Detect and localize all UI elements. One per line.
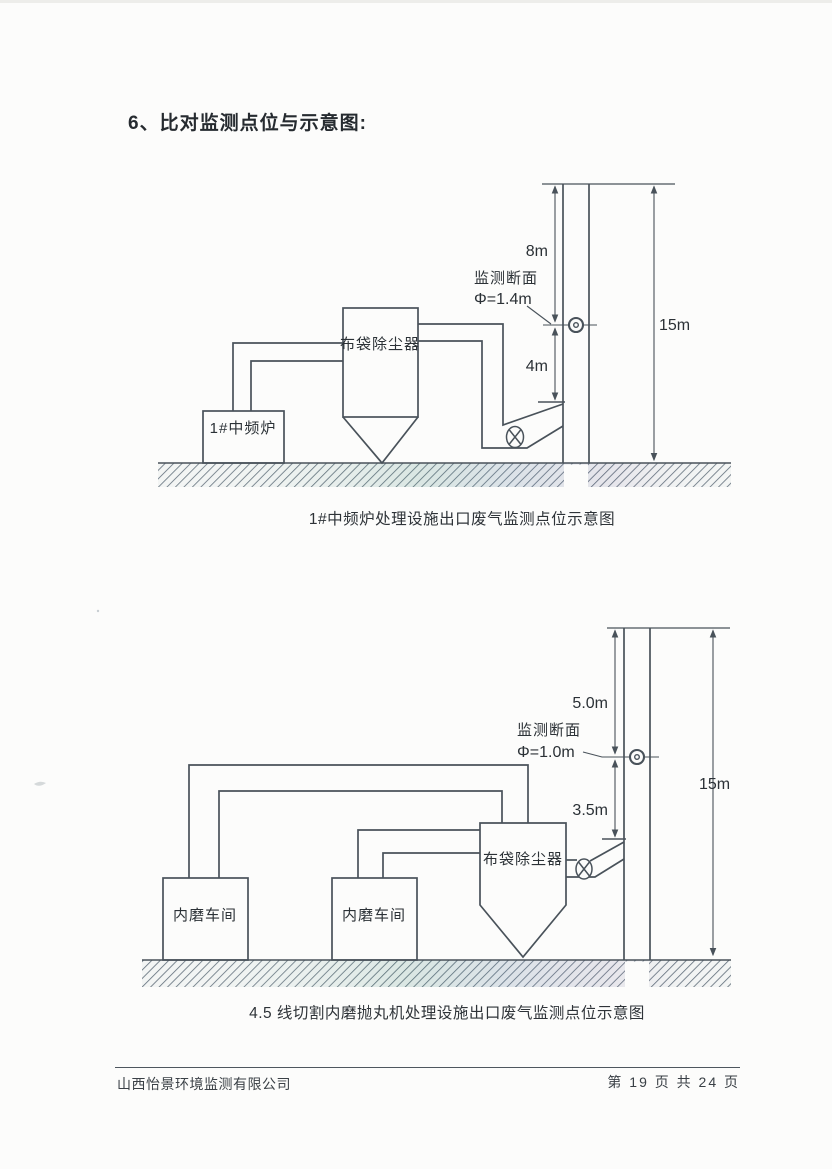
dim-3-5m-label: 3.5m (572, 802, 608, 819)
furnace-label: 1#中频炉 (210, 420, 277, 437)
outlet-duct (566, 842, 624, 877)
outlet-duct (418, 324, 563, 448)
collector-label: 布袋除尘器 (340, 336, 420, 353)
dust-collector (343, 308, 418, 463)
collector-label: 布袋除尘器 (483, 851, 563, 868)
dimension-lines (527, 187, 654, 461)
sampling-port-icon (630, 750, 644, 764)
dimension-lines (583, 631, 713, 956)
schematic-canvas: 8m 监测断面 Φ=1.4m 4m 15m 布袋除尘器 1#中频炉 (0, 0, 832, 1169)
fan-icon (576, 859, 592, 879)
scan-speck (34, 782, 46, 786)
ground-hatch (142, 960, 731, 987)
diagram2-caption: 4.5 线切割内磨抛丸机处理设施出口废气监测点位示意图 (249, 1001, 645, 1023)
sampling-port-icon (569, 318, 583, 332)
diameter-label: Φ=1.0m (517, 744, 575, 761)
diameter-label: Φ=1.4m (474, 291, 532, 308)
fan-icon (507, 427, 524, 448)
footer-page-number: 第 19 页 共 24 页 (607, 1072, 740, 1092)
document-page: 6、比对监测点位与示意图: (0, 0, 832, 1169)
section-label: 监测断面 (474, 270, 538, 287)
inlet-duct-2 (358, 830, 480, 878)
dim-4m-label: 4m (526, 358, 548, 375)
inlet-duct (233, 343, 343, 411)
diagram1-caption: 1#中频炉处理设施出口废气监测点位示意图 (309, 507, 615, 529)
workshop-label-1: 内磨车间 (173, 907, 237, 924)
section-label: 监测断面 (517, 722, 581, 739)
dust-collector (480, 823, 566, 957)
dim-5m-label: 5.0m (572, 695, 608, 712)
scan-speck (97, 610, 99, 612)
footer-divider (115, 1067, 740, 1068)
stack (542, 184, 675, 463)
stack-height-label: 15m (699, 776, 730, 793)
diagram1-schematic (158, 184, 731, 487)
furnace-box (203, 411, 284, 463)
ground-hatch (158, 463, 731, 487)
diagram2-schematic (142, 628, 731, 987)
workshop-label-2: 内磨车间 (342, 907, 406, 924)
stack-height-label: 15m (659, 317, 690, 334)
dim-8m-label: 8m (526, 243, 548, 260)
stack (607, 628, 730, 960)
footer-company: 山西怡景环境监测有限公司 (117, 1074, 291, 1094)
